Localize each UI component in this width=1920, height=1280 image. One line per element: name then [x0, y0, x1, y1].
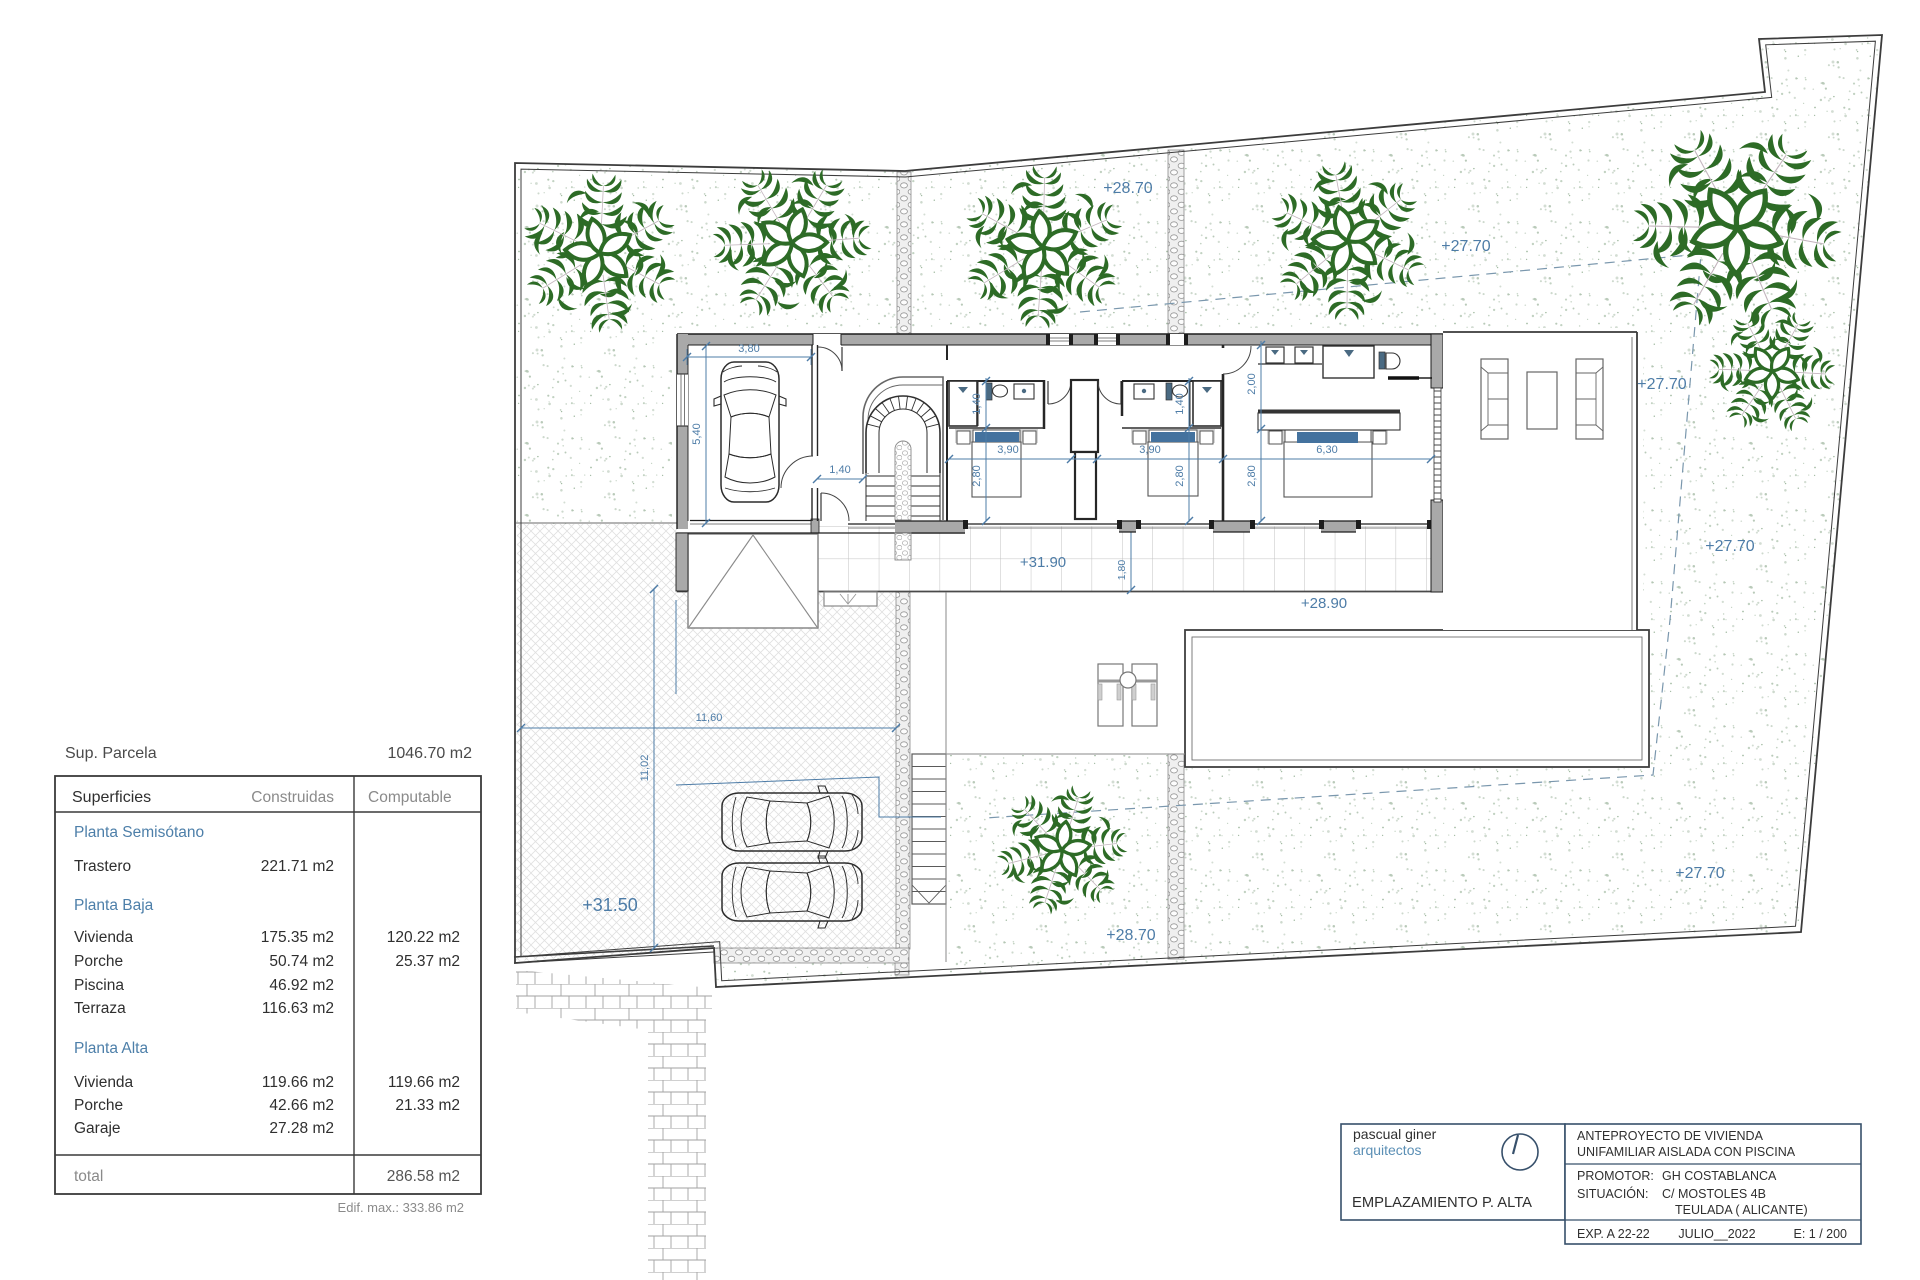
svg-text:2,80: 2,80	[971, 465, 983, 486]
svg-text:+28.90: +28.90	[1301, 595, 1347, 612]
svg-text:Construidas: Construidas	[251, 789, 334, 806]
svg-text:pascual giner: pascual giner	[1353, 1126, 1437, 1142]
svg-text:2,80: 2,80	[1174, 465, 1186, 486]
svg-text:Edif. max.: 333.86 m2: Edif. max.: 333.86 m2	[338, 1200, 464, 1215]
svg-text:UNIFAMILIAR AISLADA CON PISCIN: UNIFAMILIAR AISLADA CON PISCINA	[1577, 1145, 1796, 1159]
svg-text:116.63 m2: 116.63 m2	[262, 1000, 334, 1017]
svg-text:+28.70: +28.70	[1106, 927, 1155, 944]
svg-text:27.28 m2: 27.28 m2	[269, 1120, 334, 1137]
svg-text:+28.70: +28.70	[1103, 180, 1152, 197]
svg-text:3,90: 3,90	[1139, 444, 1160, 456]
svg-text:GH COSTABLANCA: GH COSTABLANCA	[1662, 1169, 1777, 1183]
svg-text:221.71 m2: 221.71 m2	[261, 858, 334, 875]
svg-text:C/ MOSTOLES 4B: C/ MOSTOLES 4B	[1662, 1187, 1766, 1201]
svg-text:JULIO__2022: JULIO__2022	[1678, 1227, 1755, 1241]
svg-text:2,00: 2,00	[1246, 373, 1258, 394]
svg-text:3,90: 3,90	[997, 444, 1018, 456]
svg-text:120.22 m2: 120.22 m2	[387, 929, 460, 946]
svg-text:+27.70: +27.70	[1637, 376, 1686, 393]
svg-text:+31.50: +31.50	[582, 895, 638, 915]
svg-text:EXP. A 22-22: EXP. A 22-22	[1577, 1227, 1650, 1241]
svg-text:1,40: 1,40	[971, 393, 983, 414]
svg-text:11,60: 11,60	[696, 712, 723, 724]
svg-text:Porche: Porche	[74, 953, 123, 970]
svg-text:Piscina: Piscina	[74, 977, 124, 994]
svg-text:21.33 m2: 21.33 m2	[395, 1097, 460, 1114]
svg-text:Planta Baja: Planta Baja	[74, 897, 154, 914]
svg-text:Vivienda: Vivienda	[74, 929, 134, 946]
svg-text:119.66 m2: 119.66 m2	[388, 1074, 460, 1091]
svg-text:TEULADA ( ALICANTE): TEULADA ( ALICANTE)	[1675, 1203, 1808, 1217]
svg-text:6,30: 6,30	[1316, 444, 1337, 456]
svg-text:286.58 m2: 286.58 m2	[387, 1168, 460, 1185]
svg-text:Planta Semisótano: Planta Semisótano	[74, 824, 204, 841]
svg-text:+27.70: +27.70	[1675, 865, 1724, 882]
svg-text:175.35 m2: 175.35 m2	[261, 929, 334, 946]
svg-text:50.74 m2: 50.74 m2	[269, 953, 334, 970]
svg-text:46.92 m2: 46.92 m2	[269, 977, 334, 994]
svg-text:ANTEPROYECTO DE VIVIENDA: ANTEPROYECTO DE VIVIENDA	[1577, 1129, 1764, 1143]
svg-text:1,40: 1,40	[829, 464, 850, 476]
svg-text:Sup. Parcela: Sup. Parcela	[65, 745, 157, 762]
svg-text:Computable: Computable	[368, 789, 452, 806]
svg-text:Terraza: Terraza	[74, 1000, 126, 1017]
svg-text:Planta Alta: Planta Alta	[74, 1040, 148, 1057]
svg-text:Porche: Porche	[74, 1097, 123, 1114]
svg-text:+27.70: +27.70	[1441, 238, 1490, 255]
svg-text:119.66 m2: 119.66 m2	[262, 1074, 334, 1091]
svg-text:1,80: 1,80	[1116, 560, 1128, 581]
svg-text:25.37 m2: 25.37 m2	[395, 953, 460, 970]
svg-text:PROMOTOR:: PROMOTOR:	[1577, 1169, 1654, 1183]
svg-text:+31.90: +31.90	[1020, 554, 1066, 571]
svg-text:Trastero: Trastero	[74, 858, 131, 875]
svg-text:arquitectos: arquitectos	[1353, 1142, 1421, 1158]
svg-text:3,80: 3,80	[738, 343, 759, 355]
svg-text:E: 1 / 200: E: 1 / 200	[1793, 1227, 1847, 1241]
svg-text:Garaje: Garaje	[74, 1120, 121, 1137]
svg-text:11,02: 11,02	[639, 755, 651, 782]
svg-text:EMPLAZAMIENTO P. ALTA: EMPLAZAMIENTO P. ALTA	[1352, 1194, 1532, 1211]
svg-text:+27.70: +27.70	[1705, 538, 1754, 555]
svg-text:1,40: 1,40	[1174, 393, 1186, 414]
svg-text:5,40: 5,40	[691, 423, 703, 444]
svg-text:2,80: 2,80	[1246, 465, 1258, 486]
svg-text:42.66 m2: 42.66 m2	[269, 1097, 334, 1114]
svg-text:Vivienda: Vivienda	[74, 1074, 134, 1091]
svg-text:SITUACIÓN:: SITUACIÓN:	[1577, 1186, 1649, 1201]
svg-text:1046.70 m2: 1046.70 m2	[387, 745, 472, 762]
svg-text:total: total	[74, 1168, 103, 1185]
svg-text:Superficies: Superficies	[72, 789, 151, 806]
